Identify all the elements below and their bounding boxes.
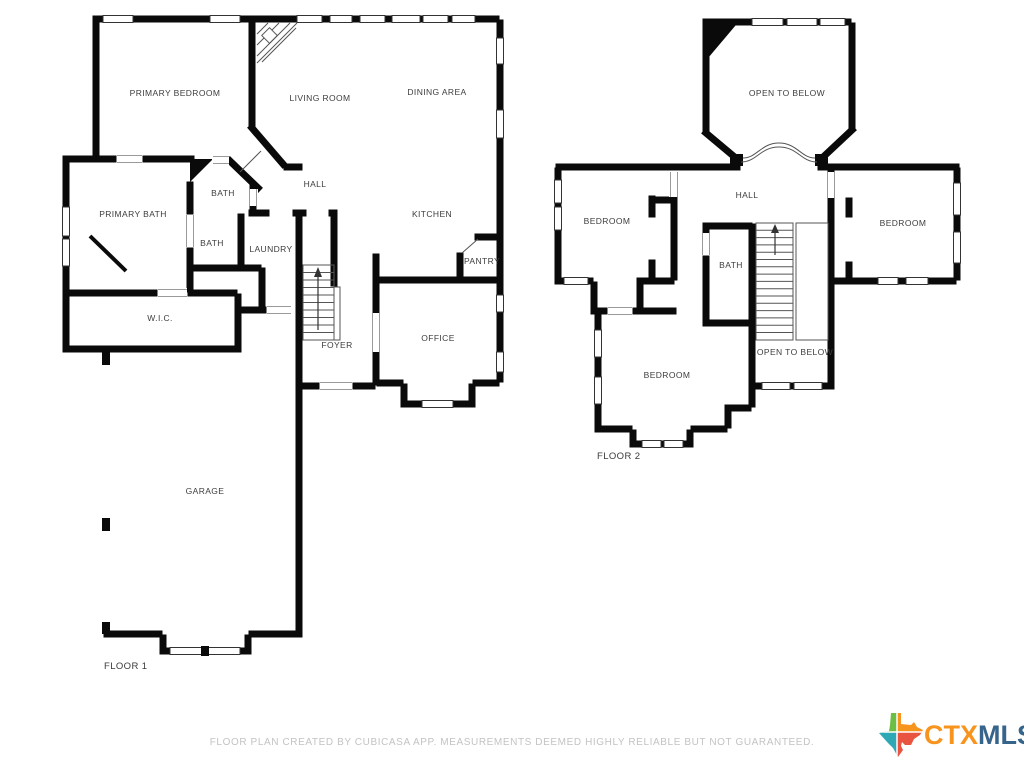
arch-stub-right <box>815 154 828 166</box>
bath-corner-wall <box>190 159 213 182</box>
room-label-foyer: FOYER <box>321 340 352 350</box>
floor2-stairs <box>756 223 828 340</box>
room-label-bedroom-bottom: BEDROOM <box>644 370 691 380</box>
shower-door-icon <box>90 236 126 271</box>
room-label-open-to-below-stairs: OPEN TO BELOW <box>757 347 833 357</box>
room-label-kitchen: KITCHEN <box>412 209 452 219</box>
logo-text-ctx: CTX <box>924 712 978 758</box>
room-label-pantry: PANTRY <box>464 256 500 266</box>
texas-state-icon <box>876 712 924 758</box>
floor2-plan <box>555 19 961 448</box>
floor1-door-leaves <box>240 151 478 253</box>
room-label-wic: W.I.C. <box>147 313 173 323</box>
room-label-living-room: LIVING ROOM <box>289 93 350 103</box>
room-label-hall-f1: HALL <box>304 179 327 189</box>
wic-wall-stub <box>102 352 110 365</box>
arch-stub-left <box>730 154 743 166</box>
room-label-laundry: LAUNDRY <box>249 244 292 254</box>
floorplan-canvas <box>0 0 1024 768</box>
room-label-dining-area: DINING AREA <box>407 87 466 97</box>
garage-corner-stub <box>102 622 110 634</box>
floor2-label: FLOOR 2 <box>597 451 640 462</box>
floorplan-page: PRIMARY BEDROOM LIVING ROOM DINING AREA … <box>0 0 1024 768</box>
room-label-open-to-below-top: OPEN TO BELOW <box>749 88 825 98</box>
disclaimer-text: FLOOR PLAN CREATED BY CUBICASA APP. MEAS… <box>0 737 1024 748</box>
ctxmls-logo: CTXMLS <box>876 712 1024 758</box>
room-label-primary-bath: PRIMARY BATH <box>99 209 167 219</box>
room-label-bedroom-left: BEDROOM <box>584 216 631 226</box>
garage-wall-stub <box>102 518 110 531</box>
room-label-bedroom-right: BEDROOM <box>880 218 927 228</box>
floor1-door-openings <box>117 154 381 391</box>
floor1-stairs <box>303 265 340 340</box>
room-label-hall-f2: HALL <box>736 190 759 200</box>
room-label-garage: GARAGE <box>186 486 225 496</box>
floor1-label: FLOOR 1 <box>104 661 147 672</box>
room-label-bath-lower: BATH <box>200 238 224 248</box>
floor2-walls <box>558 22 957 444</box>
room-label-primary-bedroom: PRIMARY BEDROOM <box>130 88 221 98</box>
fireplace-icon <box>257 23 297 63</box>
logo-text-mls: MLS <box>978 712 1024 758</box>
room-label-bath-f2: BATH <box>719 260 743 270</box>
room-label-office: OFFICE <box>421 333 455 343</box>
room-label-bath-upper: BATH <box>211 188 235 198</box>
archway-icon <box>741 143 817 162</box>
